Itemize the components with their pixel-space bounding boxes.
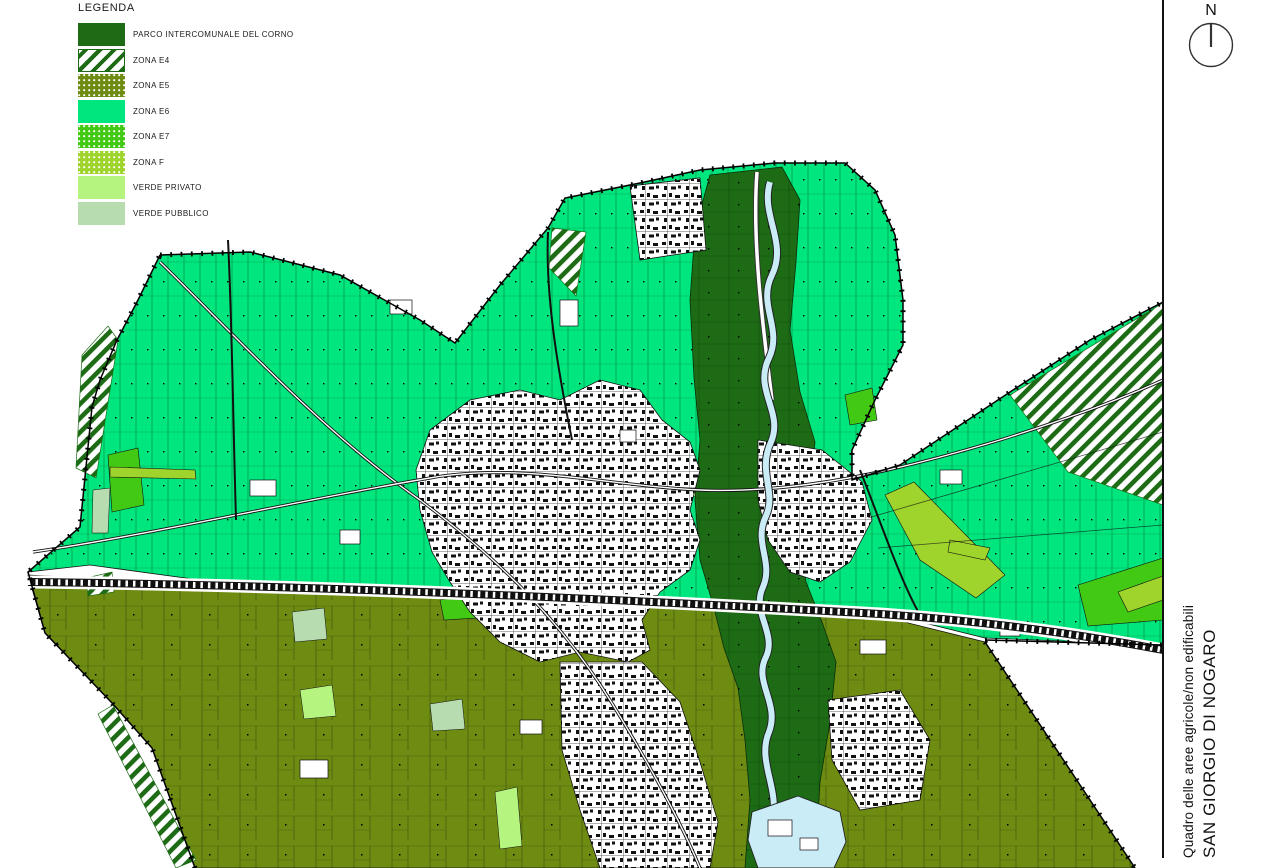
legend-item: ZONA F [78,151,294,174]
urban-area-north [630,178,706,260]
legend-item-label: PARCO INTERCOMUNALE DEL CORNO [125,30,294,39]
legend-item-label: VERDE PRIVATO [125,183,202,192]
legend-item-label: ZONA E5 [125,81,170,90]
legend: LEGENDA PARCO INTERCOMUNALE DEL CORNOZON… [78,2,294,227]
map-title: SAN GIORGIO DI NOGARO [1198,198,1221,858]
legend-items: PARCO INTERCOMUNALE DEL CORNOZONA E4ZONA… [78,23,294,225]
legend-item: ZONA E7 [78,125,294,148]
north-label: N [1205,2,1217,19]
legend-swatch-e5 [78,74,125,97]
legend-swatch-e6 [78,100,125,123]
legend-swatch-f [78,151,125,174]
legend-item-label: ZONA E6 [125,107,170,116]
legend-item: ZONA E4 [78,49,294,72]
map-subtitle: Quadro delle aree agricole/non edificabi… [1180,198,1198,858]
legend-item: VERDE PUBBLICO [78,202,294,225]
legend-swatch-e4 [78,49,125,72]
legend-swatch-verde-pubblico [78,202,125,225]
legend-item-label: ZONA F [125,158,164,167]
legend-item-label: VERDE PUBBLICO [125,209,209,218]
legend-item-label: ZONA E7 [125,132,170,141]
legend-swatch-parco [78,23,125,46]
legend-item: ZONA E5 [78,74,294,97]
legend-item: PARCO INTERCOMUNALE DEL CORNO [78,23,294,46]
legend-swatch-verde-privato [78,176,125,199]
legend-title: LEGENDA [78,2,294,14]
north-arrow: N [1183,0,1253,78]
legend-item-label: ZONA E4 [125,56,170,65]
legend-swatch-e7 [78,125,125,148]
sheet-frame-line [1162,0,1164,858]
legend-item: ZONA E6 [78,100,294,123]
plan-sheet: LEGENDA PARCO INTERCOMUNALE DEL CORNOZON… [0,0,1275,868]
legend-item: VERDE PRIVATO [78,176,294,199]
title-block: Quadro delle aree agricole/non edificabi… [1180,198,1221,858]
